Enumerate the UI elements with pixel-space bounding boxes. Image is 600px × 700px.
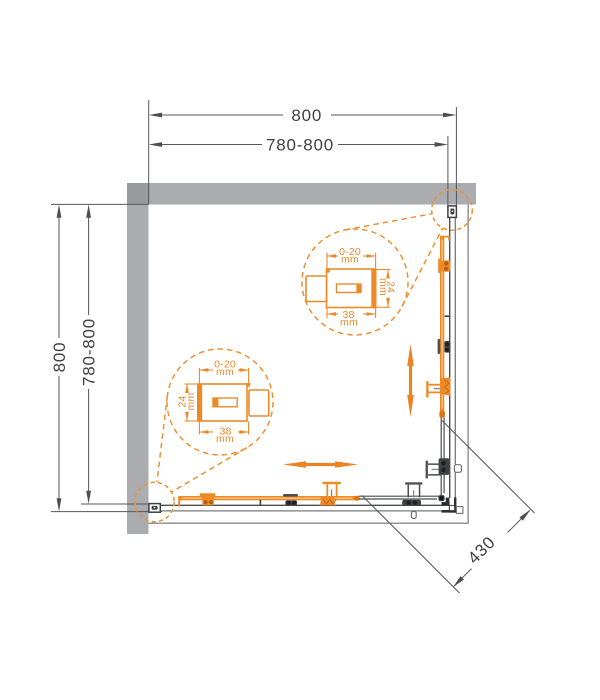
- svg-text:430: 430: [464, 533, 499, 568]
- svg-text:780-800: 780-800: [79, 318, 98, 386]
- svg-text:800: 800: [50, 342, 69, 373]
- svg-text:mm: mm: [185, 393, 197, 411]
- svg-text:mm: mm: [377, 278, 389, 296]
- svg-text:mm: mm: [216, 433, 234, 445]
- svg-text:mm: mm: [216, 366, 234, 378]
- svg-text:mm: mm: [341, 254, 359, 266]
- svg-text:780-800: 780-800: [266, 135, 334, 154]
- svg-text:800: 800: [291, 106, 322, 125]
- svg-text:mm: mm: [340, 317, 358, 329]
